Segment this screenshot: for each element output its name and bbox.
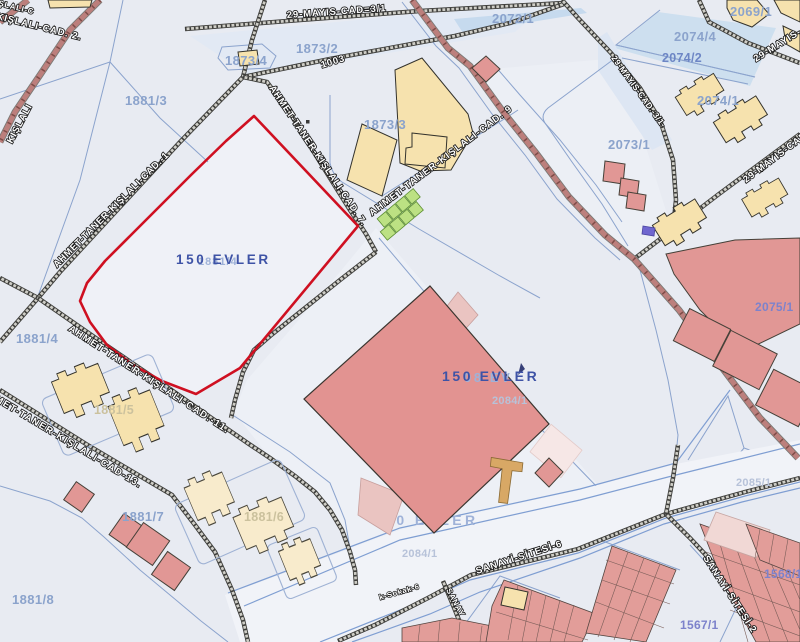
svg-text:2074/4: 2074/4 — [674, 29, 717, 44]
svg-text:1881/5: 1881/5 — [94, 403, 134, 417]
svg-text:2084/1: 2084/1 — [492, 395, 527, 407]
svg-text:2074/2: 2074/2 — [662, 51, 702, 65]
svg-text:1567/1: 1567/1 — [680, 618, 719, 632]
svg-text:150 EVLER: 150 EVLER — [176, 252, 271, 267]
svg-text:1873/3: 1873/3 — [364, 117, 406, 132]
svg-text:1881/7: 1881/7 — [122, 509, 164, 524]
svg-text:1873/2: 1873/2 — [296, 41, 338, 56]
svg-text:2073/1: 2073/1 — [608, 137, 650, 152]
svg-text:2084/1: 2084/1 — [402, 548, 437, 560]
svg-text:1881/6: 1881/6 — [244, 510, 284, 524]
svg-text:150 EVLER: 150 EVLER — [442, 368, 539, 384]
svg-text:1873/4: 1873/4 — [225, 53, 268, 68]
svg-text:2069/1: 2069/1 — [730, 4, 772, 19]
svg-text:2074/1: 2074/1 — [697, 93, 739, 108]
svg-text:1881/4: 1881/4 — [16, 331, 59, 346]
svg-text:1881/3: 1881/3 — [125, 93, 167, 108]
svg-text:2085/1: 2085/1 — [736, 477, 771, 489]
svg-text:1881/8: 1881/8 — [12, 592, 54, 607]
svg-text:2072/1: 2072/1 — [492, 11, 534, 26]
svg-text:1568/1: 1568/1 — [764, 567, 800, 581]
svg-text:2075/1: 2075/1 — [755, 300, 794, 314]
